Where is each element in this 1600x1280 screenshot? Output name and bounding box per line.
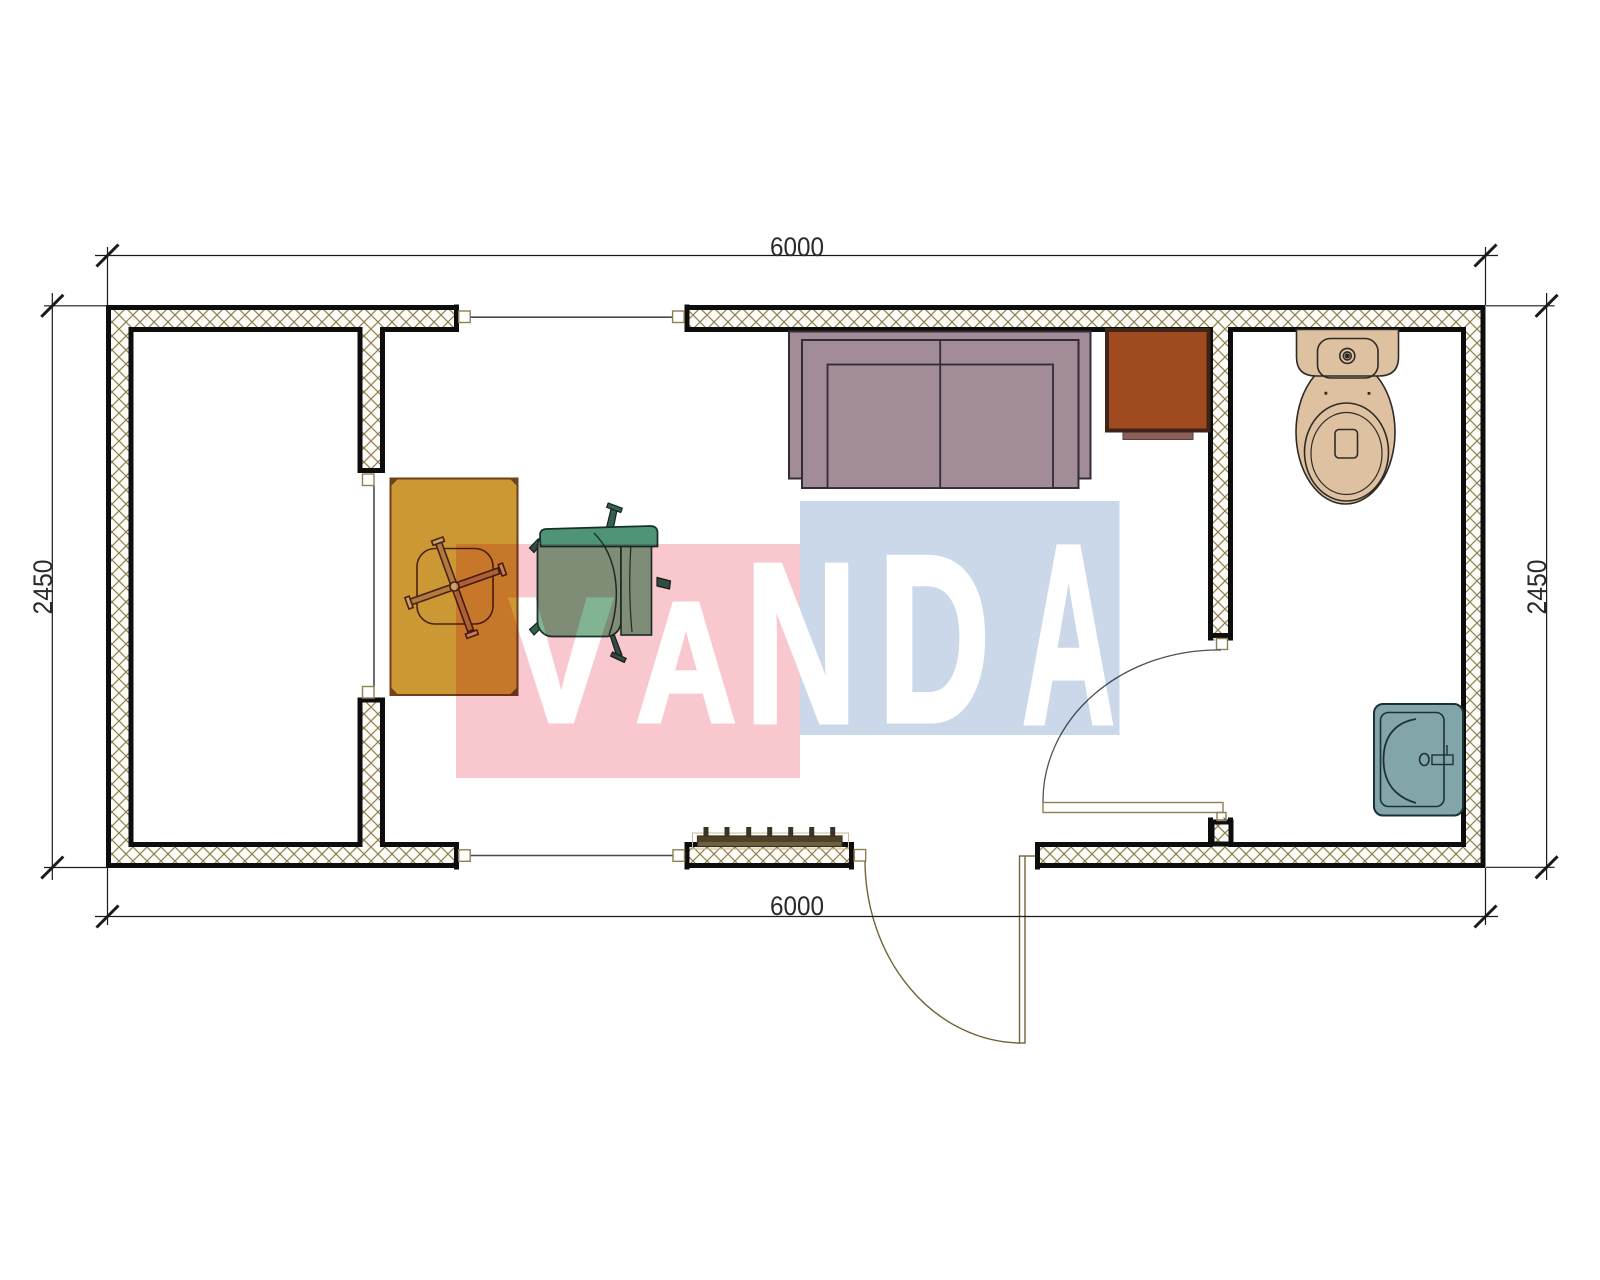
svg-text:A: A (636, 568, 736, 758)
svg-text:N: N (745, 517, 857, 771)
svg-text:V: V (510, 563, 612, 759)
svg-text:A: A (1022, 492, 1115, 778)
svg-text:2450: 2450 (28, 560, 58, 615)
svg-text:D: D (878, 507, 990, 772)
svg-text:2450: 2450 (1522, 560, 1552, 615)
svg-text:6000: 6000 (770, 891, 824, 921)
svg-text:6000: 6000 (770, 232, 824, 262)
